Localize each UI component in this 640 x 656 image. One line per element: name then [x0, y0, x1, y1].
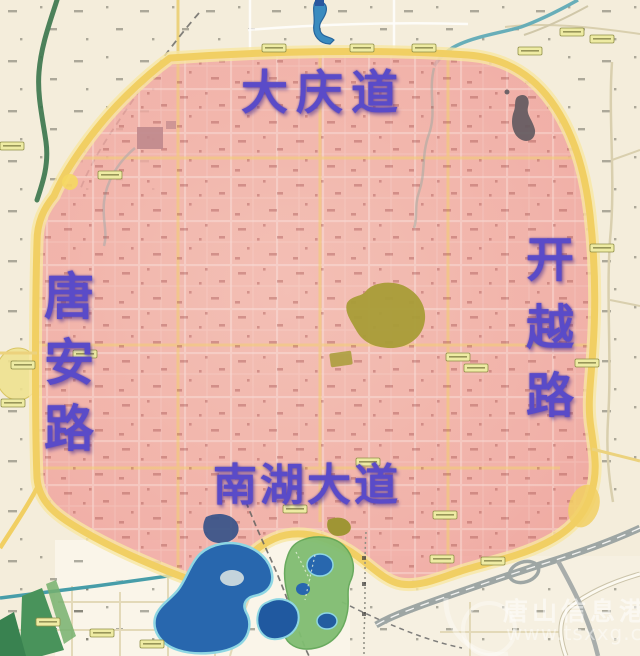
watermark-url: www.tsxxg.com	[506, 621, 640, 645]
road-label-south: 南湖大道	[213, 464, 401, 508]
road-label-north: 大庆道	[241, 70, 406, 117]
map-screenshot: 大庆道 唐安路 开越路 南湖大道 唐山信息港 www.tsxxg.com	[0, 0, 640, 656]
road-label-east: 开越路	[521, 234, 569, 438]
road-label-west: 唐安路	[40, 270, 90, 468]
